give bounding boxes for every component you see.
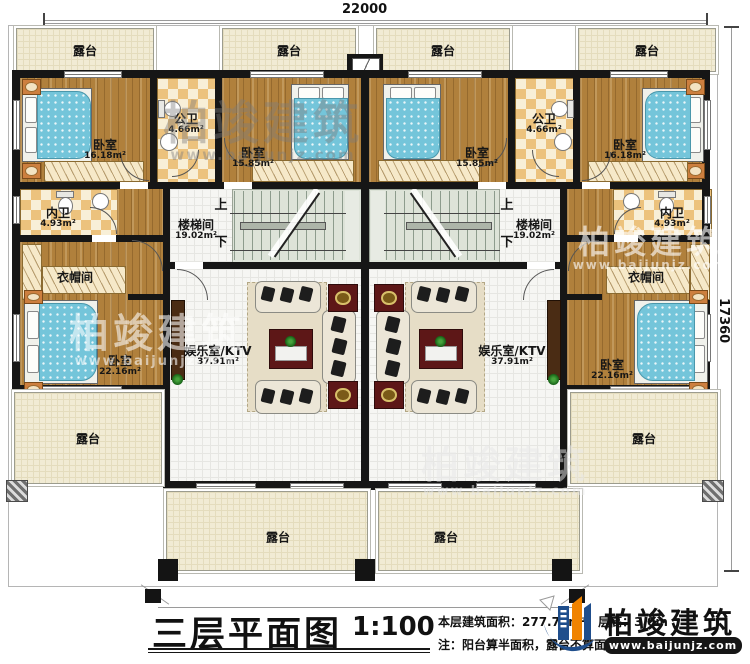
bedroom1-label: 卧室 16.18m² [84,139,126,161]
pillow [25,127,37,153]
cushion [279,389,294,405]
window [290,483,344,490]
window [13,100,20,150]
lobby-right-floor [567,189,613,235]
window [704,196,711,224]
nightstand [24,290,43,304]
room-area: 4.93m² [654,220,690,229]
stairs-down-label: 下 [500,236,513,250]
bedroom3-label: 卧室 22.16m² [99,355,141,377]
column [158,559,178,581]
top-dimension-line2 [44,23,708,24]
wall-br2r-bathr [508,70,515,188]
blanket [37,91,91,159]
cushion [330,316,346,334]
terrace-label: 露台 [434,532,458,545]
brand-url: www.baijunjz.com [604,637,742,654]
tea-table [419,329,463,369]
stairs-left-landing [345,191,359,260]
cushion [260,286,275,302]
room-area: 4.66m² [526,126,562,135]
window [64,71,122,78]
toilet [567,100,574,118]
nightstand [689,290,708,304]
bed [383,84,441,160]
terrace-top-midright: 露台 [376,28,510,72]
plant [435,336,446,347]
room-area: 4.66m² [168,126,204,135]
cushion [384,316,400,334]
room-area: 19.02m² [175,232,217,241]
cushion [416,286,431,302]
terrace-top-midleft: 露台 [222,28,356,72]
terrace-top-right: 露台 [578,28,716,72]
cushion [385,338,401,356]
cushion [435,287,450,303]
speaker [374,381,404,409]
room-name: 卧室 [591,359,633,372]
column-hatched [702,480,724,502]
ktv-left-label: 娱乐室/KTV 37.91m² [184,345,251,367]
terrace-label: 露台 [73,42,97,59]
terrace-bottom-left-wing: 露台 [14,392,162,484]
stairs-right-handrail [406,222,492,230]
stairs-left-downline [230,250,346,251]
nightstand [686,79,705,95]
top-dimension-line [44,20,708,21]
nightstand [22,163,41,179]
room-area: 15.85m² [232,160,274,169]
bed [24,300,98,384]
pillow [27,311,39,339]
stairs-right-landing [371,191,385,260]
floor-plan-page: 22000 17360 露台 露台 露台 露台 [0,0,750,664]
cushion [384,360,400,378]
public-bath-left-label: 公卫 4.66m² [168,113,204,135]
stairs-up-label: 上 [500,199,513,213]
window [408,71,482,78]
room-area: 4.93m² [40,220,76,229]
right-dimension-label: 17360 [716,295,731,346]
room-name: 卧室 [456,147,498,160]
stairs-right-upline [384,213,500,214]
bed [642,88,704,162]
pillow [25,97,37,123]
drawing-scale: 1:100 [352,612,435,642]
top-dimension-label: 22000 [339,2,390,17]
terrace-label: 露台 [632,430,656,447]
wall-cloak-left [128,294,163,300]
cushion [298,388,313,404]
room-name: 楼梯间 [175,219,217,232]
room-name: 卧室 [84,139,126,152]
window [250,71,324,78]
blanket [386,98,440,159]
wall-cloak-right [567,294,602,300]
pillow [27,345,39,373]
room-name: 娱乐室/KTV [478,345,545,358]
speaker [374,284,404,312]
cushion [260,388,275,404]
room-area: 19.02m² [513,232,555,241]
room-area: 37.91m² [478,358,545,367]
cushion [331,338,347,356]
private-bath-left-label: 内卫 4.93m² [40,207,76,229]
plant [172,374,183,385]
terrace-label: 露台 [431,42,455,59]
room-area: 22.16m² [99,368,141,377]
door-gap-privbath-right [614,235,638,242]
speaker [328,284,358,312]
stairs-up-label: 上 [214,199,227,213]
stairs-right-downline [384,250,500,251]
title-underline [148,648,430,650]
window [13,314,20,362]
column-hatched [6,480,28,502]
bed [634,300,708,384]
speaker [328,381,358,409]
sink [554,133,572,151]
blanket [645,91,691,159]
wall-center [361,70,369,489]
brand-name: 柏竣建筑 [604,600,736,642]
cloakroom-left-label: 衣帽间 [57,272,93,285]
window [610,71,668,78]
cushion [454,286,469,302]
cushion [298,286,313,302]
room-name: 娱乐室/KTV [184,345,251,358]
public-bath-right-label: 公卫 4.66m² [526,113,562,135]
sofa [376,310,410,384]
cushion [416,388,431,404]
bedroom2-label: 卧室 15.85m² [232,147,274,169]
lobby-left-floor [117,189,163,235]
terrace-label: 露台 [277,42,301,59]
column [552,559,572,581]
wall-br1-bath [150,70,157,188]
column-pad [145,589,161,603]
blanket [39,303,97,381]
bed [291,84,349,160]
terrace-top-left: 露台 [16,28,154,72]
sofa [411,281,477,313]
room-name: 公卫 [526,113,562,126]
stairs-left-upline [230,213,346,214]
room-name: 卧室 [604,139,646,152]
stairs-down-label: 下 [214,236,227,250]
wall-bath-br2 [215,70,222,188]
window [388,483,442,490]
terrace-bottom-right-wing: 露台 [570,392,718,484]
cloakroom-right-label: 衣帽间 [628,272,664,285]
plant [285,336,296,347]
room-area: 37.91m² [184,358,251,367]
stairwell-right-label: 楼梯间 19.02m² [513,219,555,241]
room-name: 公卫 [168,113,204,126]
door-gap-br1r [582,182,610,189]
sink [160,133,178,151]
door-gap-br2 [224,182,252,189]
right-dimension-line [731,26,732,572]
room-area: 16.18m² [84,152,126,161]
wall-privbath-left-bottom [12,235,170,242]
bedroom2r-label: 卧室 15.85m² [456,147,498,169]
right-dim-tick-bottom [724,570,739,572]
window [704,100,711,150]
cushion [279,287,294,303]
terrace-label: 露台 [635,42,659,59]
terrace-label: 露台 [76,430,100,447]
nightstand [686,163,705,179]
room-name: 内卫 [654,207,690,220]
door-gap-privbath-left [92,235,116,242]
wall-wing-left [163,182,170,489]
door-gap-ktv-left [175,262,203,269]
terrace-bottom-center-right [378,491,580,571]
right-dim-tick-top [724,26,739,28]
terrace-label: 露台 [266,532,290,545]
sofa [255,281,321,313]
column [355,559,375,581]
cushion [435,389,450,405]
plant [548,374,559,385]
room-area: 22.16m² [591,372,633,381]
cabinet [547,300,561,380]
door-gap-br2r [478,182,506,189]
cushion [454,388,469,404]
sofa [255,380,321,414]
stairs-left-handrail [240,222,326,230]
door-gap-br1 [120,182,148,189]
room-name: 卧室 [99,355,141,368]
room-name: 卧室 [232,147,274,160]
window [476,483,536,490]
window [196,483,256,490]
blanket [294,98,348,159]
tea-table [269,329,313,369]
cabinet [171,300,185,380]
bedroom1r-label: 卧室 16.18m² [604,139,646,161]
room-area: 16.18m² [604,152,646,161]
building-logo-icon [538,594,600,658]
room-area: 15.85m² [456,160,498,169]
bedroom3r-label: 卧室 22.16m² [591,359,633,381]
brand-logo-icon [538,594,600,658]
blanket [637,303,695,381]
sofa [322,310,356,384]
nightstand [22,79,41,95]
room-name: 内卫 [40,207,76,220]
ktv-right-label: 娱乐室/KTV 37.91m² [478,345,545,367]
wall-bathr-br1r [573,70,580,188]
cushion [330,360,346,378]
window [13,196,20,224]
sofa [411,380,477,414]
wall-wing-right [560,182,567,489]
room-name: 楼梯间 [513,219,555,232]
door-gap-ktv-right [527,262,555,269]
private-bath-right-label: 内卫 4.93m² [654,207,690,229]
stairwell-left-label: 楼梯间 19.02m² [175,219,217,241]
bed [22,88,92,162]
